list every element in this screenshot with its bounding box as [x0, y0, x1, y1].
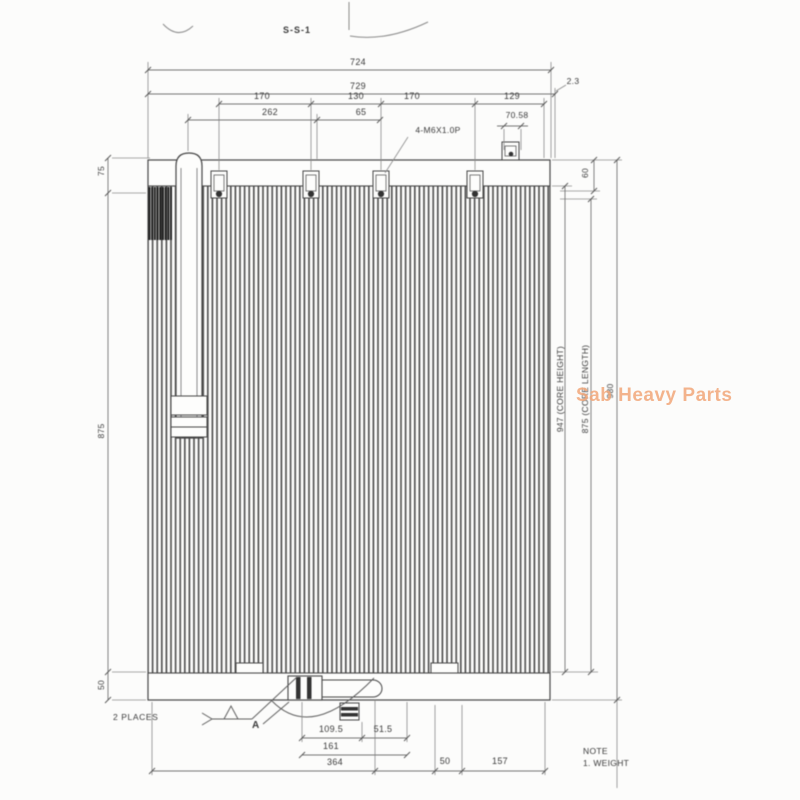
callout-tap-holes: 4-M6X1.0P	[400, 125, 476, 135]
dim-130: 130	[338, 91, 374, 101]
dim-129: 129	[494, 91, 530, 101]
dim-core-height: 947 (CORE HEIGHT)	[555, 329, 565, 449]
watermark: Sab Heavy Parts	[576, 385, 732, 407]
section-label: S-S-1	[283, 25, 311, 35]
dim-262: 262	[252, 107, 288, 117]
dim-75: 75	[96, 158, 106, 184]
filler-tube	[171, 153, 207, 438]
note-line: 1. WEIGHT	[583, 758, 629, 768]
detail-a-label: A	[252, 721, 260, 731]
dim-161: 161	[311, 741, 351, 751]
dim-70-58: 70.58	[496, 110, 538, 120]
core-fin-area	[148, 186, 550, 673]
bottom-tab-right	[431, 663, 458, 673]
weld-places-label: 2 PLACES	[113, 712, 158, 722]
dim-170-b: 170	[394, 91, 430, 101]
dim-364: 364	[315, 757, 355, 767]
dim-65: 65	[349, 107, 373, 117]
oil-cooler-drawing-page: S-S-1 724 729 170 130 170 129 262 65 70.…	[0, 0, 800, 800]
dim-60: 60	[580, 160, 590, 186]
dim-50-left: 50	[96, 672, 106, 698]
dim-50-bottom: 50	[431, 756, 459, 766]
dense-fin-block	[148, 187, 172, 240]
note-title: NOTE	[583, 746, 608, 756]
dim-109-5: 109.5	[308, 724, 354, 734]
dim-170-a: 170	[244, 91, 280, 101]
dim-875-left: 875	[96, 416, 106, 446]
bottom-tab-left	[236, 663, 263, 673]
dim-51-5: 51.5	[363, 724, 403, 734]
dim-724: 724	[340, 57, 376, 67]
top-right-tab	[502, 142, 519, 160]
dim-2-3: 2.3	[560, 76, 586, 86]
dim-729: 729	[340, 81, 376, 91]
dim-157: 157	[482, 756, 518, 766]
